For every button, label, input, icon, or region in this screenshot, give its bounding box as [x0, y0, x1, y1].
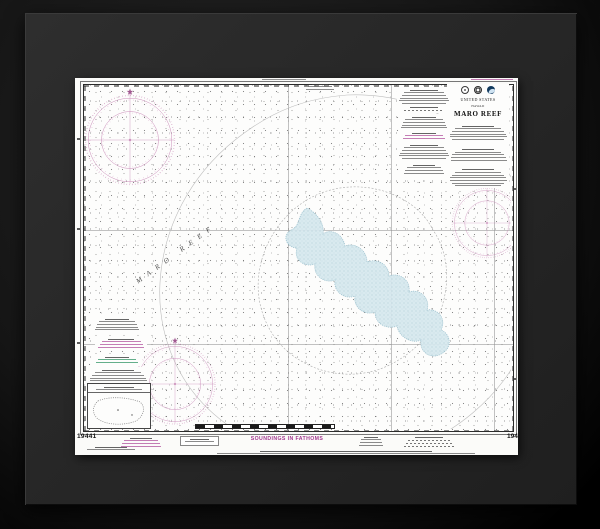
meridian-line: [288, 85, 289, 431]
caution-note: [447, 146, 509, 162]
stamp-text: [181, 439, 218, 443]
latitude-mark: [77, 138, 80, 140]
magenta-note-block: [95, 336, 147, 350]
note-block: [93, 316, 141, 332]
note-block: [401, 162, 447, 176]
note-block: [87, 367, 149, 383]
chart-title: MARO REEF: [447, 110, 509, 118]
soundings-units-note: SOUNDINGS IN FATHOMS: [221, 436, 353, 442]
latitude-mark: [513, 188, 516, 190]
approval-stamp-box: [180, 436, 219, 446]
chart-number-right: 19441: [507, 433, 518, 440]
top-margin-edition-note: [471, 79, 513, 80]
chart-title-block: UNITED STATES HAWAII MARO REEF: [447, 84, 509, 188]
latitude-mark: [77, 228, 80, 230]
meridian-line: [391, 85, 392, 431]
ocean-service-emblem-icon: [474, 86, 482, 94]
note-block: [397, 142, 451, 161]
authorities-note: [447, 167, 509, 189]
symbols-row: [397, 104, 451, 113]
chart-number-left: 19441: [77, 433, 97, 440]
magenta-correction-note: [118, 435, 164, 449]
note-block: [303, 81, 337, 92]
parallel-line: [84, 230, 513, 231]
agency-logos: [447, 86, 509, 94]
source-diagram-inset: [87, 383, 151, 429]
commerce-seal-icon: [461, 86, 469, 94]
country-label: UNITED STATES: [447, 97, 509, 102]
green-note-block: [92, 354, 142, 365]
nautical-mile-scale-bar: [195, 424, 335, 429]
edition-note: [357, 434, 385, 448]
product-photo: MARO REEF UNITED STATES HAWAII MARO REEF: [0, 0, 600, 529]
parallel-line: [84, 344, 513, 345]
region-label: HAWAII: [447, 104, 509, 108]
chart-paper: MARO REEF UNITED STATES HAWAII MARO REEF: [75, 78, 518, 455]
latitude-mark: [513, 378, 516, 380]
inset-outline: [88, 393, 150, 427]
loran-note: [401, 434, 457, 449]
general-note: [447, 123, 509, 142]
magenta-note-block: [399, 130, 449, 141]
top-margin-note: [262, 79, 306, 80]
note-block: [399, 114, 449, 130]
latitude-mark: [77, 342, 80, 344]
noaa-logo-icon: [487, 86, 495, 94]
minute-ticks-left: [84, 85, 86, 431]
inset-header: [88, 384, 150, 393]
reproduction-note: [179, 448, 513, 456]
